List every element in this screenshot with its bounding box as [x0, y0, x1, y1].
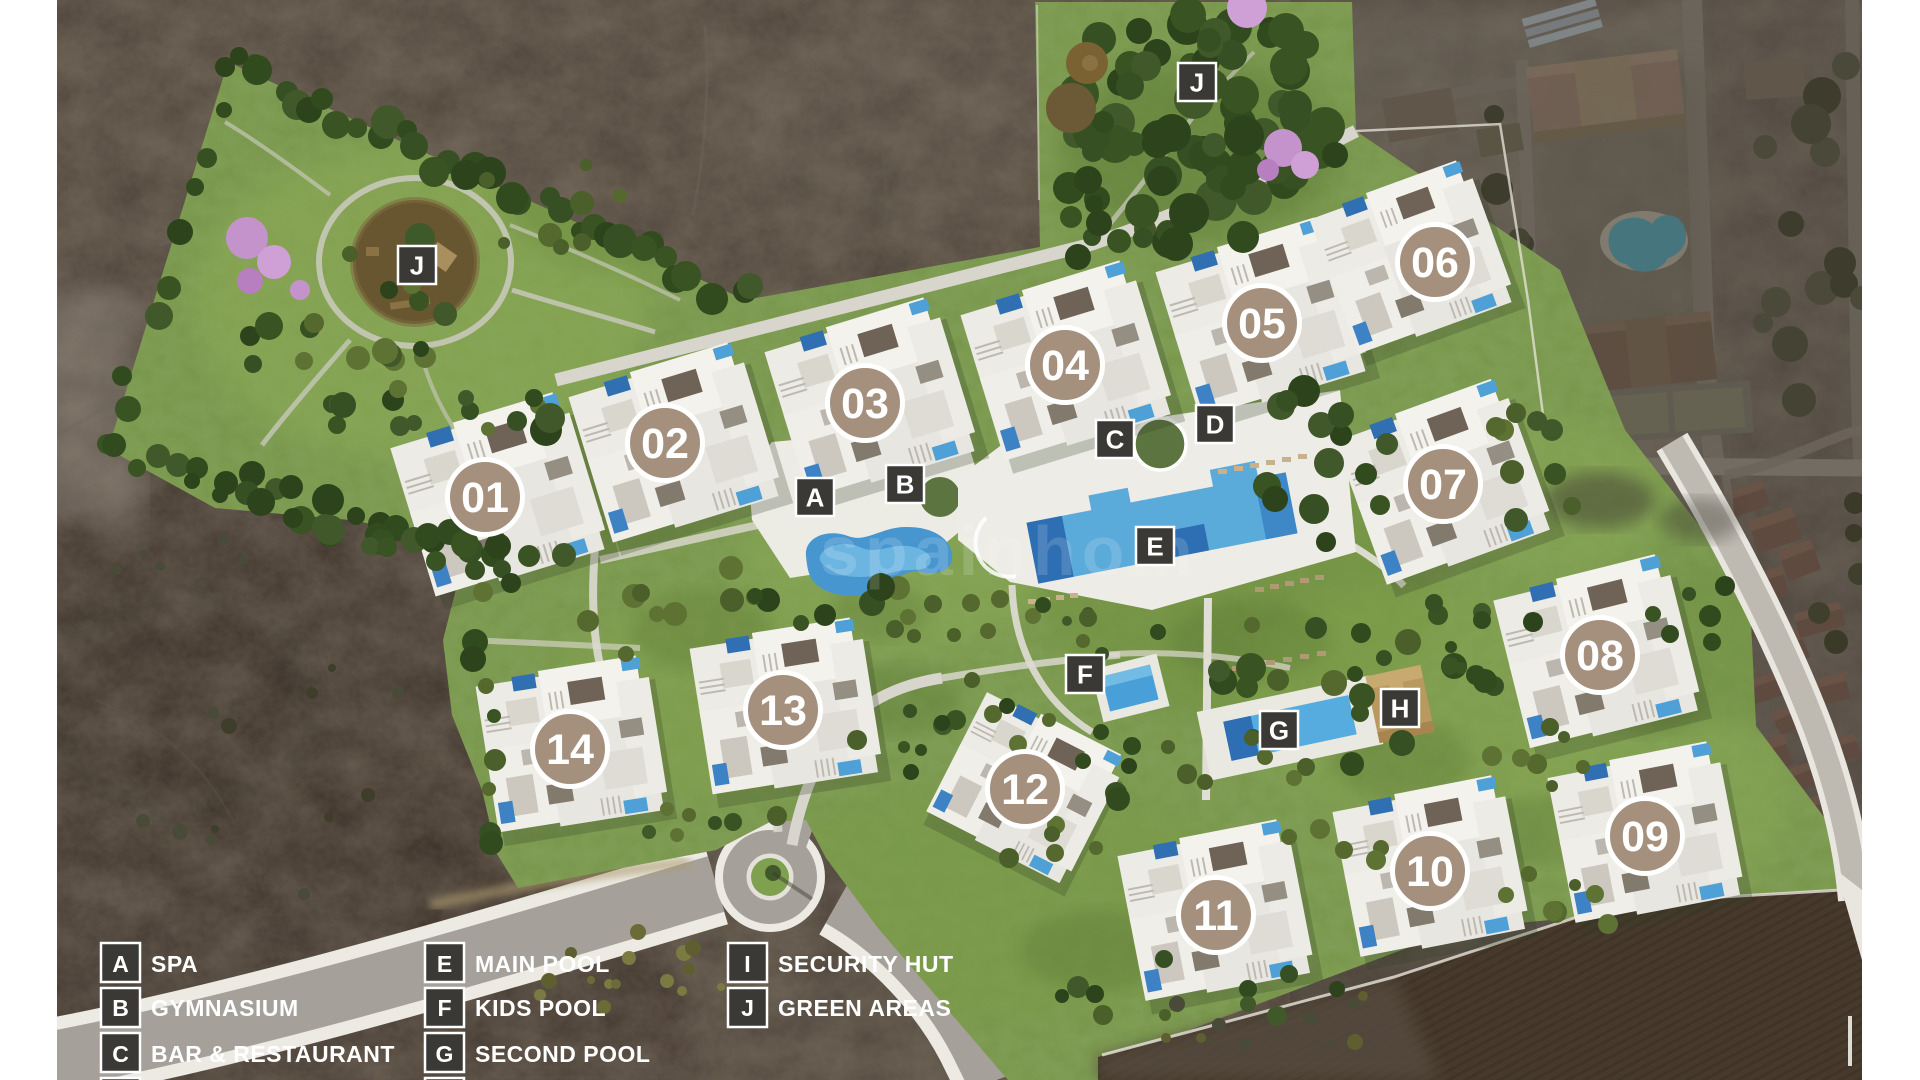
svg-text:01: 01	[461, 474, 509, 522]
svg-text:I: I	[744, 951, 750, 977]
svg-text:E: E	[437, 951, 452, 977]
svg-text:C: C	[112, 1041, 129, 1067]
svg-text:SPA: SPA	[151, 951, 198, 977]
svg-text:06: 06	[1411, 239, 1459, 287]
svg-text:F: F	[437, 995, 451, 1021]
svg-text:BAR & RESTAURANT: BAR & RESTAURANT	[151, 1041, 395, 1067]
svg-text:B: B	[896, 470, 915, 500]
svg-text:A: A	[112, 951, 129, 977]
svg-text:GREEN AREAS: GREEN AREAS	[778, 995, 951, 1021]
svg-text:J: J	[741, 995, 754, 1021]
svg-text:J: J	[1190, 68, 1204, 98]
svg-text:SECURITY HUT: SECURITY HUT	[778, 951, 954, 977]
svg-text:F: F	[1077, 660, 1093, 690]
svg-text:G: G	[1269, 716, 1289, 746]
svg-text:H: H	[1391, 694, 1410, 724]
svg-text:09: 09	[1621, 813, 1669, 861]
svg-text:E: E	[1146, 532, 1163, 562]
svg-text:03: 03	[841, 380, 889, 428]
svg-text:GYMNASIUM: GYMNASIUM	[151, 995, 299, 1021]
svg-text:MAIN POOL: MAIN POOL	[475, 951, 610, 977]
svg-text:02: 02	[641, 420, 689, 468]
svg-text:13: 13	[759, 687, 807, 735]
svg-text:11: 11	[1193, 892, 1238, 940]
svg-text:07: 07	[1419, 461, 1467, 509]
svg-text:KIDS POOL: KIDS POOL	[475, 995, 606, 1021]
svg-text:08: 08	[1576, 632, 1624, 680]
svg-text:14: 14	[546, 726, 594, 774]
svg-text:J: J	[410, 251, 424, 281]
svg-text:G: G	[436, 1041, 454, 1067]
svg-text:12: 12	[1001, 766, 1049, 814]
svg-text:10: 10	[1406, 848, 1454, 896]
svg-text:D: D	[1206, 410, 1225, 440]
svg-text:04: 04	[1041, 342, 1089, 390]
svg-text:SECOND POOL: SECOND POOL	[475, 1041, 650, 1067]
svg-text:A: A	[806, 483, 825, 513]
svg-text:C: C	[1106, 425, 1125, 455]
svg-text:B: B	[112, 995, 129, 1021]
svg-text:05: 05	[1238, 300, 1286, 348]
